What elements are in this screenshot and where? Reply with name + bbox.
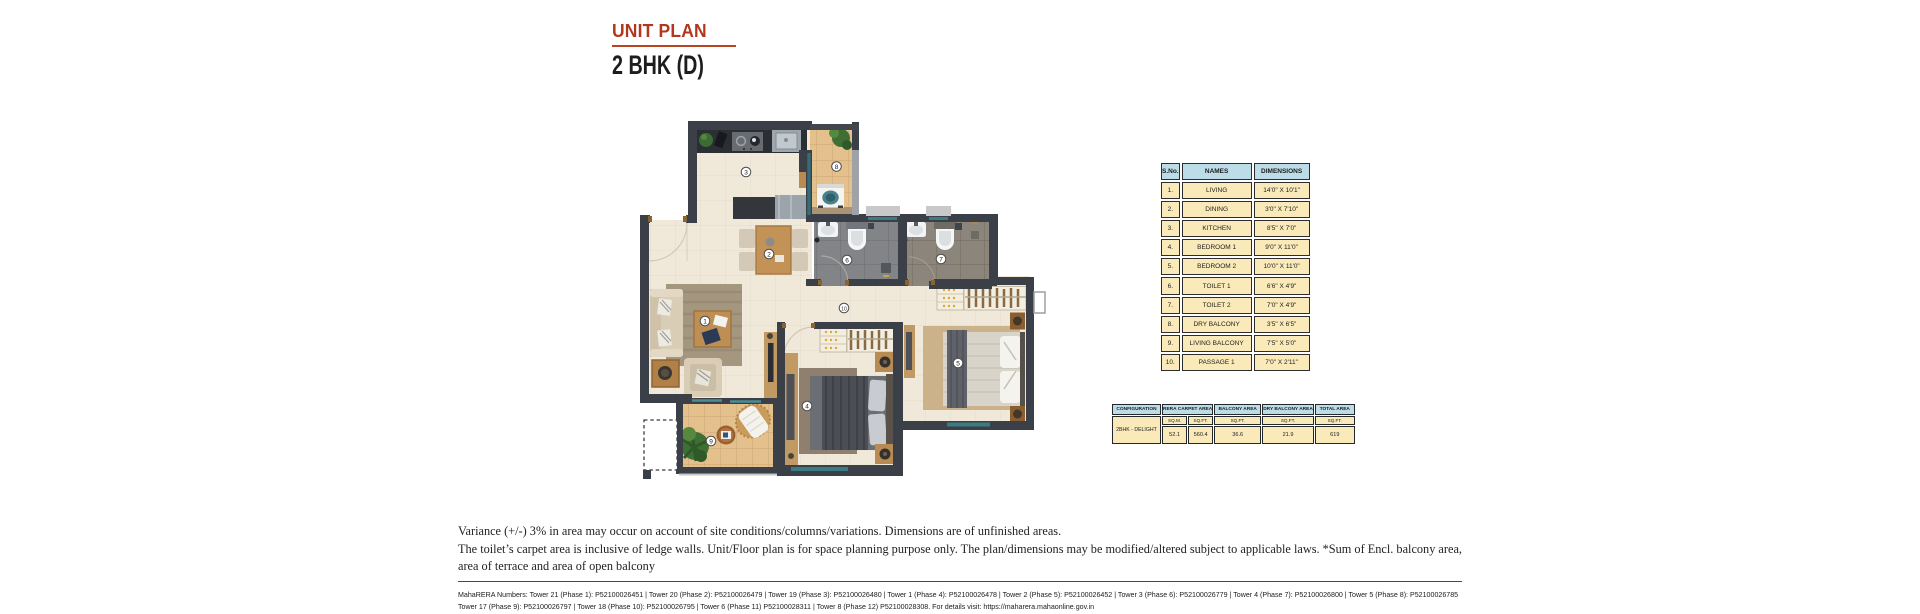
svg-text:6: 6 bbox=[845, 258, 849, 265]
svg-text:10: 10 bbox=[841, 307, 847, 313]
svg-text:7: 7 bbox=[939, 257, 943, 264]
svg-text:1: 1 bbox=[703, 319, 707, 326]
svg-text:3: 3 bbox=[744, 170, 748, 177]
svg-text:9: 9 bbox=[709, 439, 713, 446]
svg-text:5: 5 bbox=[956, 361, 960, 368]
svg-text:8: 8 bbox=[835, 164, 839, 171]
svg-text:2: 2 bbox=[767, 252, 771, 259]
svg-text:4: 4 bbox=[805, 404, 809, 411]
